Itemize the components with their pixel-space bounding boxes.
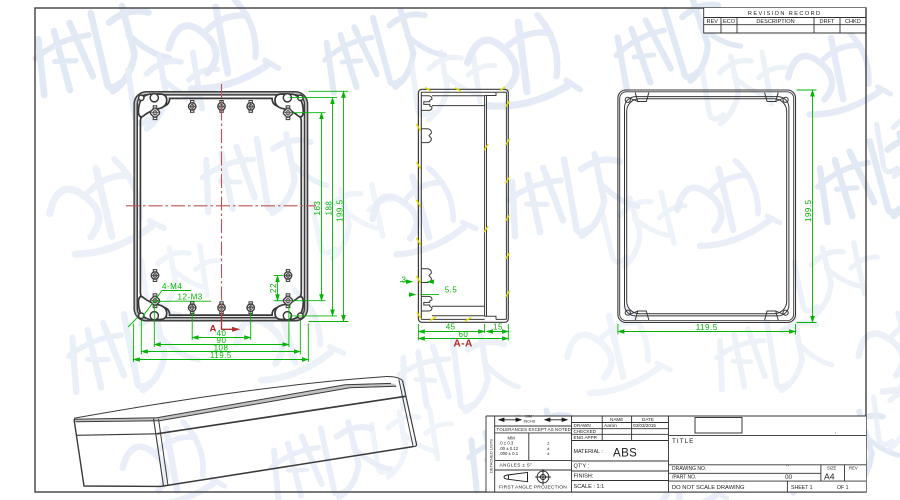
- svg-text:03/03/2015: 03/03/2015: [633, 423, 656, 428]
- svg-text:FIRST ANGLE PROJECTION: FIRST ANGLE PROJECTION: [499, 485, 567, 491]
- svg-text:/PART NO.: /PART NO.: [672, 475, 696, 481]
- svg-text:TITLE: TITLE: [672, 438, 694, 445]
- svg-text:A4: A4: [824, 472, 835, 482]
- svg-text:,: ,: [835, 429, 836, 435]
- svg-text:DRAWING NO.: DRAWING NO.: [672, 466, 706, 472]
- svg-text:QT'Y :: QT'Y :: [574, 464, 590, 470]
- svg-text:ABS: ABS: [613, 448, 637, 460]
- svg-text:ANGLES ± 5°: ANGLES ± 5°: [500, 463, 533, 469]
- svg-text:ENG APPR: ENG APPR: [574, 435, 598, 440]
- svg-text:.000 ± 0.1: .000 ± 0.1: [499, 451, 519, 456]
- svg-text:NAME: NAME: [610, 417, 623, 422]
- svg-text:DETACHED LISTS: DETACHED LISTS: [488, 439, 493, 473]
- svg-text:Aaron: Aaron: [604, 423, 617, 429]
- svg-text:SIZE: SIZE: [827, 466, 837, 471]
- svg-text:22: 22: [269, 283, 278, 293]
- svg-text:A: A: [210, 324, 217, 335]
- svg-text:199.5: 199.5: [804, 199, 813, 222]
- svg-text:FINISH:: FINISH:: [574, 474, 594, 480]
- svg-text:DATE: DATE: [642, 417, 654, 422]
- svg-text:SCALE : 1:1: SCALE : 1:1: [574, 484, 605, 490]
- svg-text:5.5: 5.5: [445, 286, 458, 295]
- svg-text:' ': ' ': [786, 465, 789, 471]
- svg-text:CHECKED: CHECKED: [574, 429, 597, 434]
- svg-text:TOLERANCES EXCEPT AS NOTED: TOLERANCES EXCEPT AS NOTED: [497, 427, 571, 432]
- svg-text:REV: REV: [707, 19, 719, 25]
- svg-text:15: 15: [493, 323, 503, 332]
- svg-text:00: 00: [785, 474, 793, 481]
- svg-text:3: 3: [402, 276, 407, 285]
- svg-text:DO NOT SCALE DRAWING: DO NOT SCALE DRAWING: [672, 485, 745, 491]
- svg-text:4-M4: 4-M4: [162, 282, 182, 291]
- svg-text:ECO: ECO: [723, 19, 736, 25]
- svg-text:163: 163: [313, 201, 322, 216]
- svg-text:OF 1: OF 1: [837, 485, 849, 491]
- svg-text:DRAWN: DRAWN: [574, 423, 591, 428]
- svg-text:REV: REV: [849, 466, 858, 471]
- svg-text:12-M3: 12-M3: [178, 293, 203, 302]
- svg-text:CHKD: CHKD: [845, 19, 861, 25]
- svg-text:199.5: 199.5: [336, 199, 345, 222]
- svg-text:SHEET 1: SHEET 1: [791, 485, 813, 491]
- svg-text:MM: MM: [526, 415, 532, 419]
- svg-text:119.5: 119.5: [210, 351, 232, 360]
- svg-text:188: 188: [324, 201, 333, 216]
- svg-text:45: 45: [446, 323, 456, 332]
- svg-text:REVISION RECORD: REVISION RECORD: [748, 11, 822, 17]
- svg-text:MATERIAL :: MATERIAL :: [574, 449, 603, 455]
- svg-text:A-A: A-A: [454, 338, 473, 349]
- svg-text:119.5: 119.5: [696, 323, 718, 332]
- svg-text:DRFT: DRFT: [820, 19, 835, 25]
- svg-text:INCHS: INCHS: [524, 419, 536, 423]
- svg-text:DESCRIPTION: DESCRIPTION: [756, 19, 794, 25]
